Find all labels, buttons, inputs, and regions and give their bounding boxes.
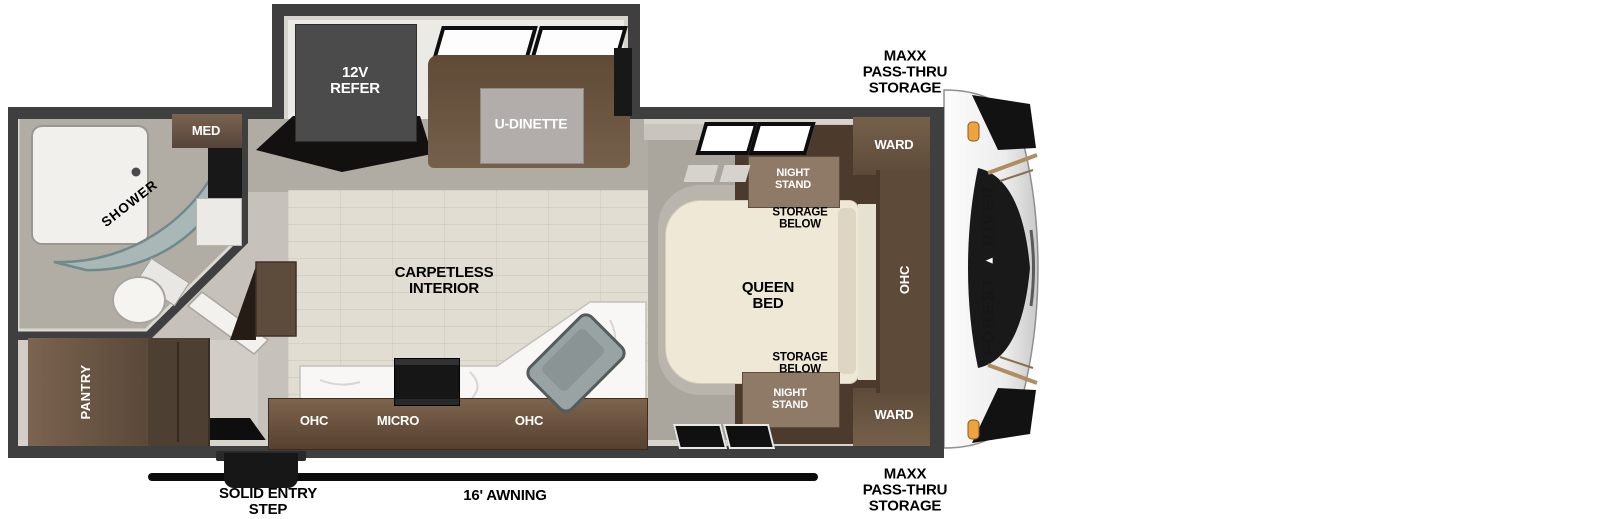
label-micro: MICRO [377, 414, 419, 428]
label-ohc-bedroom: OHC [898, 266, 912, 294]
wardrobe-door-seam [177, 342, 179, 442]
brand-word-river: RIVER [981, 184, 999, 245]
slide-trim-top [284, 16, 628, 20]
bedroom-window-top-right [748, 122, 815, 155]
front-cap-brand: FOREST RIVER [948, 95, 1032, 445]
label-ward-top: WARD [875, 138, 914, 152]
toilet-bowl [112, 276, 166, 324]
brand-word-forest: FOREST [981, 276, 999, 356]
label-storage-bottom: MAXX PASS-THRU STORAGE [863, 467, 948, 516]
label-nightstand-bottom: NIGHT STAND [772, 388, 808, 412]
label-med: MED [192, 124, 220, 138]
label-storage-below-top: STORAGE BELOW [772, 207, 827, 232]
label-ward-bottom: WARD [875, 408, 914, 422]
brand-text: FOREST RIVER [981, 184, 999, 355]
slide-trim-left [284, 16, 288, 119]
shower-drain-icon [132, 168, 141, 177]
slide-wall-top [272, 4, 640, 16]
slide-wall-left [272, 4, 284, 119]
bedroom-window-bottom-right [723, 424, 775, 449]
label-storage-below-bottom: STORAGE BELOW [772, 352, 827, 377]
dinette-shelf [614, 48, 632, 116]
forest-river-logo-icon [983, 254, 997, 268]
cooktop [394, 358, 460, 406]
bath-vanity [196, 198, 242, 246]
label-ohc-right: OHC [515, 414, 543, 428]
bed-headboard [858, 204, 878, 380]
label-pantry: PANTRY [79, 365, 93, 420]
label-carpetless: CARPETLESS INTERIOR [395, 265, 494, 297]
bedroom-vent-left [684, 165, 719, 182]
label-awning: 16' AWNING [463, 488, 547, 504]
label-entry-step: SOLID ENTRY STEP [219, 486, 317, 518]
linen-cabinet [208, 148, 242, 200]
wall-left [8, 107, 18, 458]
label-storage-top: MAXX PASS-THRU STORAGE [863, 49, 948, 98]
entry-step [224, 453, 298, 488]
label-dinette: U-DINETTE [495, 116, 568, 131]
label-ohc-left: OHC [300, 414, 328, 428]
shower-pan [32, 126, 148, 244]
floorplan-canvas: MAXX PASS-THRU STORAGE MAXX PASS-THRU ST… [0, 0, 1600, 519]
bedroom-window-bottom-left [673, 424, 727, 449]
wall-right [930, 107, 944, 458]
label-nightstand-top: NIGHT STAND [775, 168, 811, 192]
label-queen-bed: QUEEN BED [742, 280, 794, 312]
label-refer: 12V REFER [330, 65, 380, 97]
bed-pillow [838, 208, 856, 374]
utility-cabinet [256, 262, 296, 336]
bedroom-vent-right [720, 165, 751, 182]
wall-top-left [8, 107, 284, 119]
